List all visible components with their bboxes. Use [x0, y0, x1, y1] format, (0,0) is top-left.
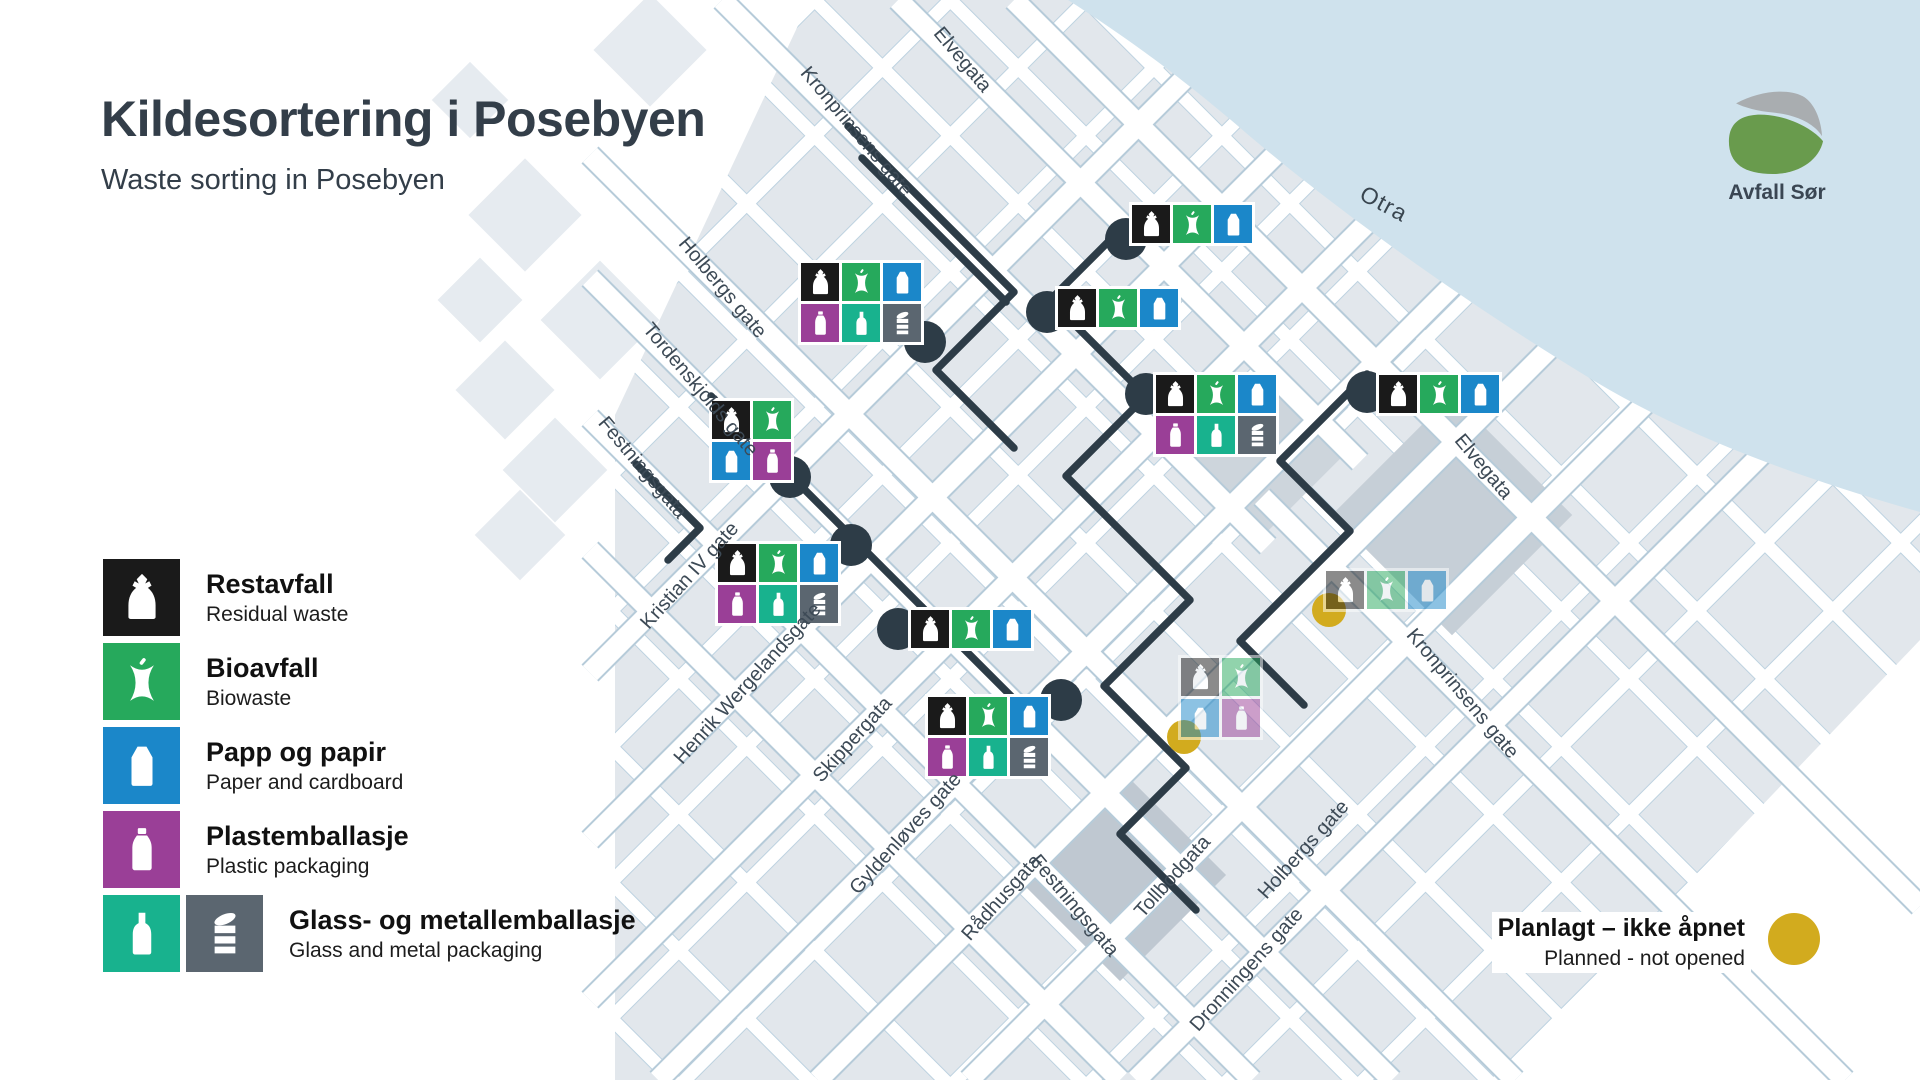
tile-bioavfall: [1420, 375, 1458, 413]
tile-papp-og-papir: [1408, 571, 1446, 609]
tile-plastemballasje: [1222, 699, 1260, 737]
waste-station-st-1: [1129, 202, 1255, 246]
legend-title: Papp og papir: [206, 737, 403, 768]
legend-swatches: [103, 727, 180, 804]
bag-icon: [915, 614, 946, 645]
bag-icon: [1383, 379, 1414, 410]
tile-bioavfall: [1222, 658, 1260, 696]
bag-icon: [1160, 379, 1191, 410]
legend-labels: BioavfallBiowaste: [206, 653, 319, 711]
tile-plastemballasje: [103, 811, 180, 888]
tile-papp-og-papir: [1181, 699, 1219, 737]
tile-restavfall: [1379, 375, 1417, 413]
tile-papp-og-papir: [800, 544, 838, 582]
legend-item-glassemballasje: Glass- og metallemballasjeGlass and meta…: [103, 895, 636, 972]
legend-title: Restavfall: [206, 569, 348, 600]
bag-icon: [805, 267, 836, 298]
waste-station-st-10: [1323, 568, 1449, 612]
apple-icon: [1177, 209, 1208, 240]
waste-type-legend: RestavfallResidual wasteBioavfallBiowast…: [103, 559, 636, 972]
plastic-icon: [757, 446, 788, 477]
tile-papp-og-papir: [1214, 205, 1252, 243]
tile-restavfall: [1156, 375, 1194, 413]
page-title: Kildesortering i Posebyen: [101, 90, 705, 148]
legend-swatches: [103, 895, 263, 972]
legend-title: Bioavfall: [206, 653, 319, 684]
carton-icon: [1465, 379, 1496, 410]
can-icon: [197, 906, 253, 962]
legend-title: Glass- og metallemballasje: [289, 905, 636, 936]
bag-icon: [932, 701, 963, 732]
tile-glassemballasje: [103, 895, 180, 972]
plastic-icon: [722, 589, 753, 620]
apple-icon: [973, 701, 1004, 732]
tile-bioavfall: [1173, 205, 1211, 243]
leaf-logo-icon: [1725, 88, 1829, 176]
logo-text: Avfall Sør: [1718, 181, 1836, 205]
apple-icon: [1226, 662, 1257, 693]
bag-icon: [1330, 575, 1361, 606]
legend-swatches: [103, 643, 180, 720]
plastic-icon: [1160, 420, 1191, 451]
legend-swatches: [103, 559, 180, 636]
tile-restavfall: [1181, 658, 1219, 696]
plastic-icon: [114, 822, 170, 878]
carton-icon: [997, 614, 1028, 645]
tile-metallemballasje: [1010, 738, 1048, 776]
legend-labels: PlastemballasjePlastic packaging: [206, 821, 409, 879]
plastic-icon: [1226, 703, 1257, 734]
apple-icon: [757, 405, 788, 436]
plastic-icon: [805, 308, 836, 339]
waste-station-st-2: [798, 260, 924, 345]
can-icon: [887, 308, 918, 339]
tile-restavfall: [1132, 205, 1170, 243]
apple-icon: [1424, 379, 1455, 410]
apple-icon: [1103, 293, 1134, 324]
can-icon: [1014, 742, 1045, 773]
tile-metallemballasje: [1238, 416, 1276, 454]
tile-metallemballasje: [186, 895, 263, 972]
carton-icon: [887, 267, 918, 298]
legend-subtitle: Glass and metal packaging: [289, 939, 636, 963]
carton-icon: [1144, 293, 1175, 324]
carton-icon: [804, 548, 835, 579]
tile-plastemballasje: [1156, 416, 1194, 454]
carton-icon: [114, 738, 170, 794]
tile-restavfall: [801, 263, 839, 301]
avfall-sor-logo: Avfall Sør: [1718, 88, 1836, 205]
legend-item-papp-og-papir: Papp og papirPaper and cardboard: [103, 727, 636, 804]
legend-subtitle: Residual waste: [206, 603, 348, 627]
can-icon: [1242, 420, 1273, 451]
tile-metallemballasje: [883, 304, 921, 342]
page-subtitle: Waste sorting in Posebyen: [101, 164, 705, 197]
glass-icon: [763, 589, 794, 620]
legend-item-bioavfall: BioavfallBiowaste: [103, 643, 636, 720]
waste-station-st-3: [1055, 286, 1181, 330]
waste-station-st-9: [925, 694, 1051, 779]
tile-bioavfall: [842, 263, 880, 301]
legend-title: Plastemballasje: [206, 821, 409, 852]
tile-bioavfall: [1367, 571, 1405, 609]
tile-bioavfall: [952, 610, 990, 648]
apple-icon: [1371, 575, 1402, 606]
legend-subtitle: Paper and cardboard: [206, 771, 403, 795]
apple-icon: [956, 614, 987, 645]
tile-bioavfall: [1197, 375, 1235, 413]
planned-circle-swatch: [1768, 913, 1820, 965]
tile-bioavfall: [103, 643, 180, 720]
bag-icon: [114, 570, 170, 626]
tile-papp-og-papir: [1238, 375, 1276, 413]
tile-glassemballasje: [969, 738, 1007, 776]
apple-icon: [1201, 379, 1232, 410]
glass-icon: [114, 906, 170, 962]
legend-item-restavfall: RestavfallResidual waste: [103, 559, 636, 636]
legend-subtitle: Plastic packaging: [206, 855, 409, 879]
apple-icon: [114, 654, 170, 710]
legend-item-plastemballasje: PlastemballasjePlastic packaging: [103, 811, 636, 888]
tile-plastemballasje: [801, 304, 839, 342]
glass-icon: [1201, 420, 1232, 451]
tile-bioavfall: [753, 401, 791, 439]
tile-plastemballasje: [718, 585, 756, 623]
tile-restavfall: [103, 559, 180, 636]
tile-papp-og-papir: [1010, 697, 1048, 735]
plastic-icon: [932, 742, 963, 773]
bag-icon: [1062, 293, 1093, 324]
tile-glassemballasje: [842, 304, 880, 342]
apple-icon: [846, 267, 877, 298]
planned-subtitle: Planned - not opened: [1498, 947, 1745, 971]
tile-restavfall: [911, 610, 949, 648]
legend-subtitle: Biowaste: [206, 687, 319, 711]
tile-bioavfall: [1099, 289, 1137, 327]
carton-icon: [1185, 703, 1216, 734]
legend-labels: RestavfallResidual waste: [206, 569, 348, 627]
tile-glassemballasje: [1197, 416, 1235, 454]
tile-papp-og-papir: [1461, 375, 1499, 413]
tile-restavfall: [1058, 289, 1096, 327]
tile-bioavfall: [759, 544, 797, 582]
waste-station-st-5: [1376, 372, 1502, 416]
waste-station-st-8: [908, 607, 1034, 651]
waste-station-st-11: [1178, 655, 1263, 740]
planned-title: Planlagt – ikke åpnet: [1498, 914, 1745, 943]
legend-labels: Glass- og metallemballasjeGlass and meta…: [289, 905, 636, 963]
carton-icon: [1412, 575, 1443, 606]
tile-bioavfall: [969, 697, 1007, 735]
carton-icon: [1014, 701, 1045, 732]
glass-icon: [846, 308, 877, 339]
tile-papp-og-papir: [993, 610, 1031, 648]
tile-restavfall: [928, 697, 966, 735]
tile-restavfall: [1326, 571, 1364, 609]
tile-papp-og-papir: [103, 727, 180, 804]
bag-icon: [1136, 209, 1167, 240]
header: Kildesortering i Posebyen Waste sorting …: [101, 90, 705, 197]
carton-icon: [1218, 209, 1249, 240]
legend-swatches: [103, 811, 180, 888]
glass-icon: [973, 742, 1004, 773]
tile-papp-og-papir: [883, 263, 921, 301]
legend-labels: Papp og papirPaper and cardboard: [206, 737, 403, 795]
tile-papp-og-papir: [1140, 289, 1178, 327]
apple-icon: [763, 548, 794, 579]
carton-icon: [1242, 379, 1273, 410]
waste-station-st-4: [1153, 372, 1279, 457]
bag-icon: [1185, 662, 1216, 693]
